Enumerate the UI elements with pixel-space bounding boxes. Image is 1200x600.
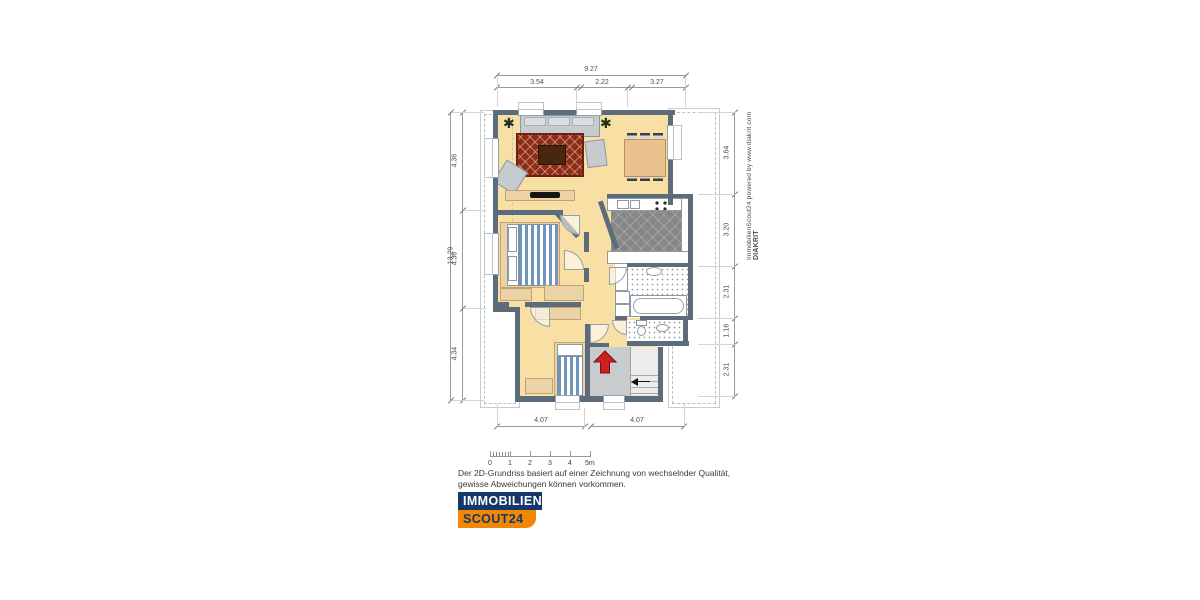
bed-pillow xyxy=(508,227,517,252)
dim-label: 3.20 xyxy=(724,212,731,248)
window-sill xyxy=(603,402,625,410)
watermark-text: ImmobilienScout24 powered by www.diakrit… xyxy=(746,112,753,260)
kitchen-floor xyxy=(611,209,683,253)
scale-tick xyxy=(590,451,591,457)
window-sill xyxy=(484,233,493,275)
window xyxy=(518,109,544,116)
extension-line xyxy=(464,210,486,211)
armchair xyxy=(584,139,607,168)
bedroom-dresser xyxy=(500,288,532,301)
bedroom-bench xyxy=(544,285,584,301)
watermark-brand: DIAKRIT xyxy=(753,230,760,260)
bathroom-sink xyxy=(646,267,662,276)
wall-wc-right xyxy=(683,316,688,346)
dim-line-left-segments xyxy=(462,112,463,400)
dim-label: 3.64 xyxy=(724,135,731,171)
scale-bar-hatch xyxy=(490,452,510,456)
dim-line-right-segments xyxy=(734,112,735,396)
kitchen-sink xyxy=(617,200,629,209)
dim-label: 2.31 xyxy=(724,274,731,310)
window xyxy=(492,138,499,178)
dining-table xyxy=(624,139,666,177)
disclaimer-line-2: gewisse Abweichungen können vorkommen. xyxy=(458,479,626,490)
extension-line xyxy=(698,318,736,319)
dim-label: 3.54 xyxy=(517,79,557,86)
window xyxy=(576,109,602,116)
coffee-table xyxy=(538,145,566,165)
wall-bedroom-right xyxy=(584,232,589,252)
immobilienscout24-logo: IMMOBILIEN SCOUT24 xyxy=(458,492,542,528)
sofa-cushion xyxy=(524,117,546,126)
scale-label: 0 xyxy=(488,460,492,467)
extension-line xyxy=(497,77,498,107)
bottom-room-dresser xyxy=(525,378,553,394)
scale-tick xyxy=(510,451,511,457)
bed-pillow xyxy=(508,256,517,281)
scale-tick xyxy=(530,451,531,457)
wall-bedroom-right xyxy=(584,268,589,282)
scale-tick xyxy=(550,451,551,457)
extension-line xyxy=(497,404,498,428)
washing-machine xyxy=(615,291,630,304)
extension-line xyxy=(452,112,484,113)
entrance-arrow-icon xyxy=(592,350,618,374)
bathtub-inner xyxy=(633,298,684,314)
sofa-cushion xyxy=(548,117,570,126)
wall-stairs-right xyxy=(658,347,663,400)
floorplan-content: ✱ ✱ xyxy=(440,60,780,580)
scale-tick xyxy=(570,451,571,457)
window-sill xyxy=(673,125,682,160)
bed-duvet xyxy=(518,224,558,286)
wall-kitchen-right xyxy=(688,194,693,320)
sofa-cushion xyxy=(572,117,594,126)
scale-label: 5m xyxy=(585,460,595,467)
extension-line xyxy=(627,89,628,107)
floorplan-image: ✱ ✱ xyxy=(0,0,1200,600)
window-sill xyxy=(555,402,580,410)
extension-line xyxy=(584,408,585,428)
wall-wc-bottom xyxy=(627,341,689,346)
extension-line xyxy=(464,308,486,309)
extension-line xyxy=(698,396,736,397)
scale-label: 4 xyxy=(568,460,572,467)
wall-bath-top xyxy=(627,263,689,267)
stairs-direction-arrow-icon xyxy=(631,378,638,386)
dim-line-bottom-1 xyxy=(497,426,585,427)
dim-tick xyxy=(683,72,689,78)
scale-label: 1 xyxy=(508,460,512,467)
scale-label: 2 xyxy=(528,460,532,467)
wall-bath-bottom xyxy=(640,316,689,320)
diakrit-watermark: ImmobilienScout24 powered by www.diakrit… xyxy=(746,95,760,260)
extension-line xyxy=(698,194,736,195)
extension-line xyxy=(698,112,736,113)
dim-line-bottom-2 xyxy=(591,426,684,427)
window xyxy=(492,233,499,275)
plant-icon: ✱ xyxy=(503,116,515,130)
wall-stairhall-top xyxy=(585,343,609,347)
extension-line xyxy=(698,266,736,267)
extension-line xyxy=(684,404,685,428)
single-bed-duvet xyxy=(557,356,583,396)
dim-label: 3.27 xyxy=(637,79,677,86)
window-sill xyxy=(484,138,493,178)
stove xyxy=(651,199,667,210)
dim-label: 4.36 xyxy=(452,241,459,277)
extension-line xyxy=(576,89,577,107)
tv xyxy=(530,192,560,198)
kitchen-sink xyxy=(630,200,640,209)
window-sill xyxy=(576,102,602,110)
wc-sink xyxy=(656,324,669,332)
wall-kitchen-top xyxy=(607,194,693,198)
dim-tick xyxy=(683,84,689,90)
dim-label: 2.31 xyxy=(724,352,731,388)
dim-label: 4.07 xyxy=(617,417,657,424)
wall-left-lower xyxy=(515,307,520,402)
logo-immobilien-bar: IMMOBILIEN xyxy=(458,492,542,510)
scale-bar-line xyxy=(490,456,590,457)
scale-tick xyxy=(490,451,491,457)
stairs-direction-line xyxy=(636,381,650,382)
single-bed-pillow xyxy=(557,344,583,356)
dim-line-top-segments xyxy=(497,87,686,88)
dim-label: 2.22 xyxy=(582,79,622,86)
extension-line xyxy=(452,400,484,401)
dim-line-top-total xyxy=(497,75,686,76)
dim-label: 4.36 xyxy=(452,143,459,179)
wall-bedroom-bottom xyxy=(493,302,509,307)
dim-label: 9.27 xyxy=(571,66,611,73)
extension-line xyxy=(685,77,686,107)
logo-scout24-bar: SCOUT24 xyxy=(458,510,536,528)
disclaimer-line-1: Der 2D-Grundriss basiert auf einer Zeich… xyxy=(458,468,730,479)
extension-line xyxy=(698,344,736,345)
scale-label: 3 xyxy=(548,460,552,467)
plant-icon: ✱ xyxy=(600,116,612,130)
window-sill xyxy=(518,102,544,110)
toilet-bowl xyxy=(637,326,646,336)
dim-label: 4.07 xyxy=(521,417,561,424)
dim-label: 4.34 xyxy=(452,336,459,372)
